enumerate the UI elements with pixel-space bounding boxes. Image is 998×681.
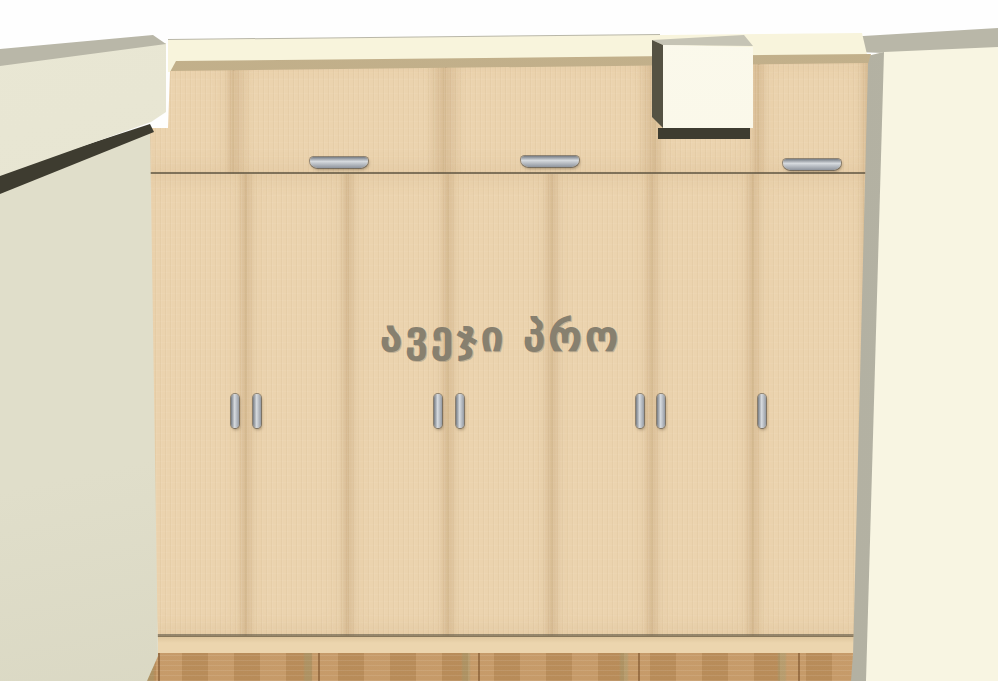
- door-handle-3[interactable]: [434, 394, 442, 428]
- door-handle-2[interactable]: [253, 394, 261, 428]
- brand-text: ავეჯი პრო: [320, 312, 680, 361]
- upper-cabinet-door-5[interactable]: [758, 58, 868, 174]
- design-viewport: ავეჯი პრო: [0, 0, 998, 681]
- upper-cabinet-handle-3[interactable]: [783, 159, 841, 170]
- door-handle-4[interactable]: [456, 394, 464, 428]
- wardrobe-door-6[interactable]: [652, 174, 755, 636]
- door-handle-7[interactable]: [758, 394, 766, 428]
- upper-cabinet-handle-1[interactable]: [310, 157, 368, 168]
- upper-cabinet-handle-2[interactable]: [521, 156, 579, 167]
- wardrobe-door-7[interactable]: [753, 174, 868, 636]
- door-handle-6[interactable]: [657, 394, 665, 428]
- door-handle-1[interactable]: [231, 394, 239, 428]
- door-handle-5[interactable]: [636, 394, 644, 428]
- wardrobe-door-2[interactable]: [246, 174, 350, 636]
